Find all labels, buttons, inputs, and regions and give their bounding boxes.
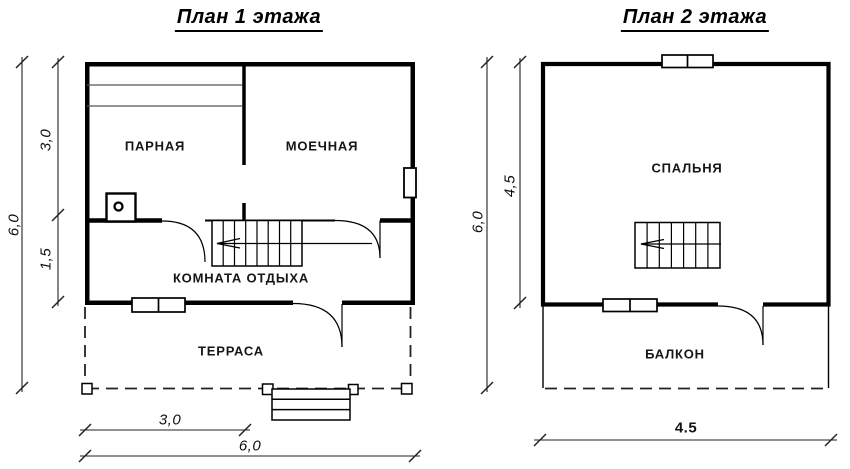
dim-label-plan1-bottom-inner: 3,0	[159, 412, 181, 429]
sauna-bench-lines	[87, 85, 242, 106]
dim-label-plan2-room-height: 4,5	[502, 175, 519, 197]
stove-symbol	[107, 194, 136, 222]
window-symbol-top-wall-floor2	[662, 55, 713, 68]
plan2-title: План 2 этажа	[621, 6, 769, 32]
room-label-komnata-otdyha: КОМНАТА ОТДЫХА	[173, 271, 309, 286]
plan1-outer-walls	[87, 64, 413, 303]
stairs-symbol-floor2	[635, 223, 721, 269]
window-symbol-right-wall	[404, 168, 416, 198]
dim-label-plan1-total-height: 6,0	[6, 214, 23, 236]
room-label-balkon: БАЛКОН	[645, 347, 705, 362]
floorplan-linework	[0, 0, 850, 469]
window-symbol-bottom-wall-floor2	[603, 299, 657, 312]
window-symbol-bottom-wall	[132, 298, 185, 312]
room-label-moechnaya: МОЕЧНАЯ	[286, 139, 358, 154]
door-arc-terrace	[293, 304, 342, 348]
door-arc-balcony	[718, 306, 763, 345]
room-label-spalnya: СПАЛЬНЯ	[651, 161, 722, 176]
entrance-steps	[272, 389, 350, 420]
stairs-symbol-floor1	[212, 221, 372, 267]
dim-label-plan2-total-height: 6,0	[470, 211, 487, 233]
door-arc-moechnaya	[335, 221, 380, 259]
dim-label-plan1-bottom-total: 6,0	[239, 438, 261, 455]
room-label-terrasa: ТЕРРАСА	[198, 344, 264, 359]
dim-label-plan2-bottom-width: 4.5	[675, 420, 697, 437]
plan1-title: План 1 этажа	[175, 6, 323, 32]
dim-label-plan1-upper-height: 3,0	[38, 129, 55, 151]
dim-label-plan1-lower-height: 1,5	[38, 248, 55, 270]
door-arc-parnaya	[162, 221, 205, 262]
plan2-drawing	[481, 55, 837, 446]
floorplan-drawing: План 1 этажа План 2 этажа ПАРНАЯ МОЕЧНАЯ…	[0, 0, 850, 469]
room-label-parnaya: ПАРНАЯ	[125, 139, 185, 154]
plan1-drawing	[16, 56, 421, 462]
